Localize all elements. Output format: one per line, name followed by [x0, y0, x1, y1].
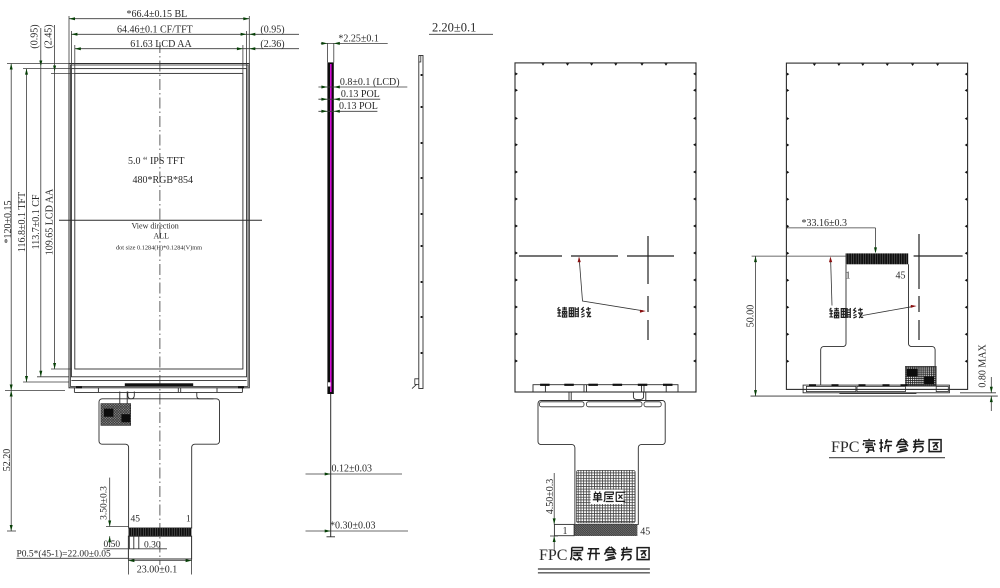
svg-text:480*RGB*854: 480*RGB*854 [133, 175, 194, 186]
svg-text:FPC: FPC [831, 439, 859, 456]
svg-text:45: 45 [896, 271, 906, 282]
svg-text:(2.45): (2.45) [44, 24, 55, 48]
svg-text:P0.5*(45-1)=22.00±0.05: P0.5*(45-1)=22.00±0.05 [17, 549, 111, 560]
svg-text:0.12±0.03: 0.12±0.03 [332, 464, 373, 475]
svg-text:*120±0.15: *120±0.15 [3, 201, 14, 244]
svg-text:ALL: ALL [154, 232, 170, 241]
svg-text:*0.30±0.03: *0.30±0.03 [330, 521, 376, 532]
svg-text:45: 45 [131, 515, 141, 525]
svg-text:View direction: View direction [132, 222, 179, 231]
svg-text:23.00±0.1: 23.00±0.1 [137, 565, 178, 576]
svg-text:109.65 LCD AA: 109.65 LCD AA [44, 188, 55, 255]
svg-text:4.50±0.3: 4.50±0.3 [545, 479, 556, 515]
svg-text:52.20: 52.20 [2, 449, 13, 472]
svg-text:0.13 POL: 0.13 POL [341, 89, 380, 100]
svg-text:(0.95): (0.95) [30, 24, 41, 48]
svg-text:2.20±0.1: 2.20±0.1 [432, 21, 476, 35]
svg-text:FPC: FPC [539, 547, 567, 564]
svg-text:*2.25±0.1: *2.25±0.1 [338, 34, 379, 45]
svg-text:1: 1 [563, 526, 568, 537]
svg-text:113.7±0.1 CF: 113.7±0.1 CF [31, 194, 42, 249]
svg-text:116.8±0.1 TFT: 116.8±0.1 TFT [17, 192, 28, 252]
svg-text:64.46±0.1 CF/TFT: 64.46±0.1 CF/TFT [117, 25, 193, 36]
svg-text:*33.16±0.3: *33.16±0.3 [802, 218, 848, 229]
svg-text:50.00: 50.00 [746, 305, 757, 328]
svg-text:45: 45 [640, 527, 650, 538]
svg-text:0.13 POL: 0.13 POL [339, 101, 378, 112]
svg-text:3.50±0.3: 3.50±0.3 [100, 486, 110, 520]
svg-text:(2.36): (2.36) [260, 39, 284, 50]
svg-text:1: 1 [186, 515, 191, 525]
svg-text:5.0 “ IPS TFT: 5.0 “ IPS TFT [128, 156, 185, 167]
svg-text:*66.4±0.15 BL: *66.4±0.15 BL [127, 9, 188, 20]
svg-text:(0.95): (0.95) [260, 25, 284, 36]
svg-text:61.63 LCD AA: 61.63 LCD AA [130, 39, 192, 50]
svg-text:dot size 0.1284(H)*0.1284(V)mm: dot size 0.1284(H)*0.1284(V)mm [116, 245, 202, 252]
svg-text:0.8±0.1 (LCD): 0.8±0.1 (LCD) [340, 77, 400, 88]
svg-text:0.80 MAX: 0.80 MAX [978, 344, 989, 388]
